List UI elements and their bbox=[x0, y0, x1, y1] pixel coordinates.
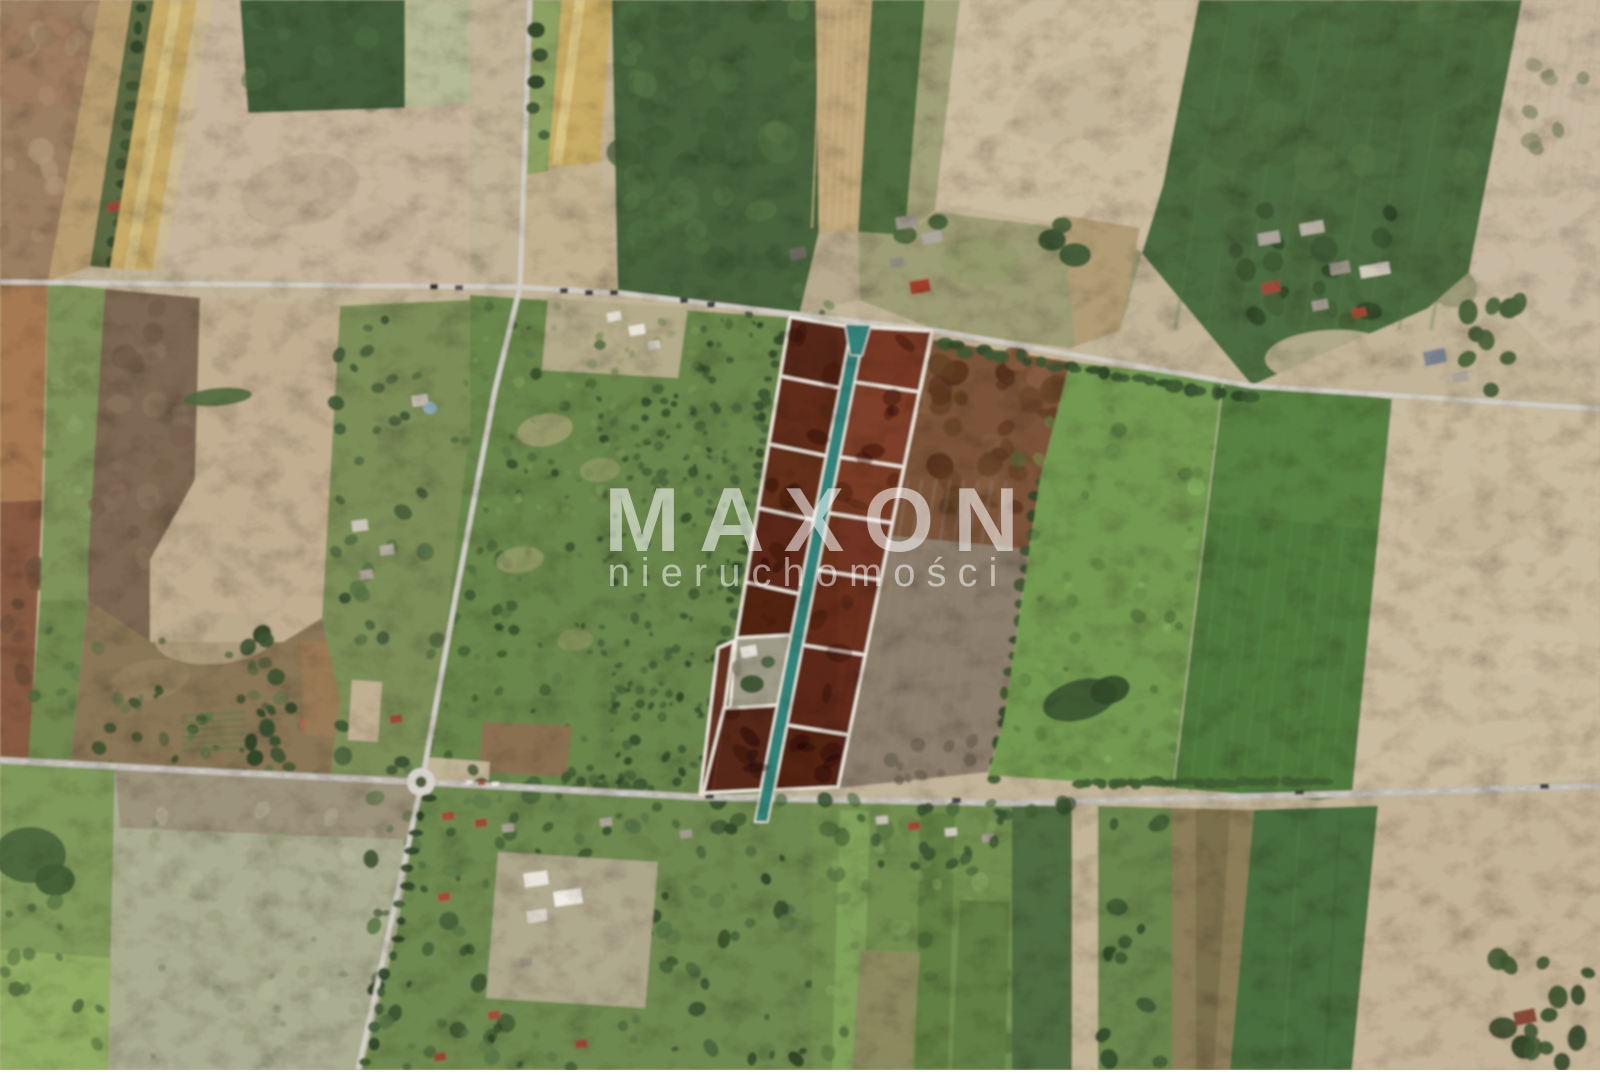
svg-text:nieruchomości: nieruchomości bbox=[608, 551, 1009, 595]
